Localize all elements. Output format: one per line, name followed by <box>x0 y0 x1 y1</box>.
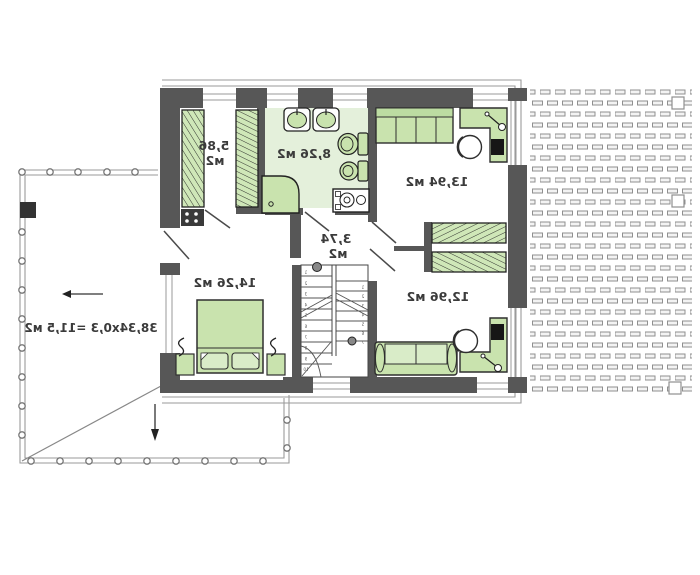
window <box>333 88 367 108</box>
stair-step-number: 7 <box>304 335 307 340</box>
window <box>160 275 180 353</box>
window <box>477 377 508 393</box>
nightstand <box>267 354 285 375</box>
terrace-door <box>164 231 189 259</box>
washing-machine <box>333 189 369 212</box>
terrace-area-label: 38,34x0,3 =11,5 м2 <box>24 321 157 335</box>
room-bedroom-top-right: 13,94 м2 <box>376 108 507 189</box>
stair-step-number: 5 <box>304 313 307 318</box>
bidet <box>340 161 368 181</box>
direction-arrow-down-icon <box>151 404 159 441</box>
nightstand <box>176 354 194 375</box>
floor-plan-page: 38,34x0,3 =11,5 м2 <box>0 0 700 575</box>
monitor-icon <box>491 324 504 340</box>
stair-step-number: 8 <box>304 346 307 351</box>
dresser <box>181 209 204 226</box>
room-area-label: 5,86 <box>198 138 229 153</box>
direction-arrow-left-icon <box>62 290 103 298</box>
roof-window-icon <box>672 97 684 109</box>
room-area-label: 12,96 м2 <box>407 289 470 304</box>
chair <box>454 330 478 353</box>
stair-step-number: 2 <box>361 294 364 299</box>
stair-step-number: 2 <box>304 281 307 286</box>
stair-step-number: 1 <box>304 270 307 275</box>
closet-hatch <box>236 110 258 207</box>
closet-hatch <box>432 223 506 243</box>
terrace-post <box>20 202 36 218</box>
stair-step-number: 6 <box>361 331 364 336</box>
monitor-icon <box>491 139 504 155</box>
sink <box>313 108 339 131</box>
room-bedroom-left: 14,26 м2 <box>176 275 285 375</box>
floor-plan-drawing: 38,34x0,3 =11,5 м2 <box>0 0 700 575</box>
room-hall: 3,74 м2 <box>320 231 351 261</box>
sink <box>284 108 310 131</box>
window <box>267 88 298 108</box>
stair-step-number: 1 <box>361 285 364 290</box>
roof-tile-hatch <box>530 86 692 396</box>
room-area-unit: м2 <box>206 153 225 168</box>
window <box>203 88 236 108</box>
room-area-unit: м2 <box>329 246 348 261</box>
window <box>473 88 508 108</box>
stair-step-number: 3 <box>304 292 307 297</box>
chair <box>458 136 482 159</box>
window <box>313 377 350 393</box>
stair-step-number: 10 <box>303 367 309 372</box>
stair-step-number: 7 <box>361 340 364 345</box>
sofa-bed <box>376 108 453 143</box>
shower <box>262 176 299 213</box>
roof-window-icon <box>672 195 684 207</box>
room-area-label: 13,94 м2 <box>406 174 469 189</box>
stair-step-number: 3 <box>361 303 364 308</box>
room-area-label: 3,74 <box>320 231 351 246</box>
terrace-diagonal-line <box>22 386 161 461</box>
bathroom-door <box>305 212 329 231</box>
wardrobe-door <box>205 210 230 228</box>
roof-window-icon <box>669 382 681 394</box>
bedroom-top-right-door <box>372 222 396 243</box>
closet-hatch <box>182 110 204 207</box>
sofa <box>375 342 457 375</box>
toilet <box>338 133 368 155</box>
stair-step-number: 4 <box>361 313 364 318</box>
table-lamp-icon <box>271 338 276 356</box>
stair-newel-post <box>348 337 356 345</box>
room-area-label: 8,26 м2 <box>277 146 331 161</box>
room-area-label: 14,26 м2 <box>194 275 257 290</box>
bed <box>197 300 263 373</box>
room-bottom-right: 12,96 м2 <box>375 289 507 375</box>
staircase: 12345678910 1234567 <box>301 263 368 378</box>
stair-step-number: 9 <box>304 356 307 361</box>
stair-step-number: 4 <box>304 302 307 307</box>
stair-newel-post <box>313 263 322 272</box>
stair-step-number: 5 <box>361 322 364 327</box>
closet-hatch <box>432 252 506 272</box>
stair-step-number: 6 <box>304 324 307 329</box>
room-bottom-right-door <box>370 249 395 271</box>
